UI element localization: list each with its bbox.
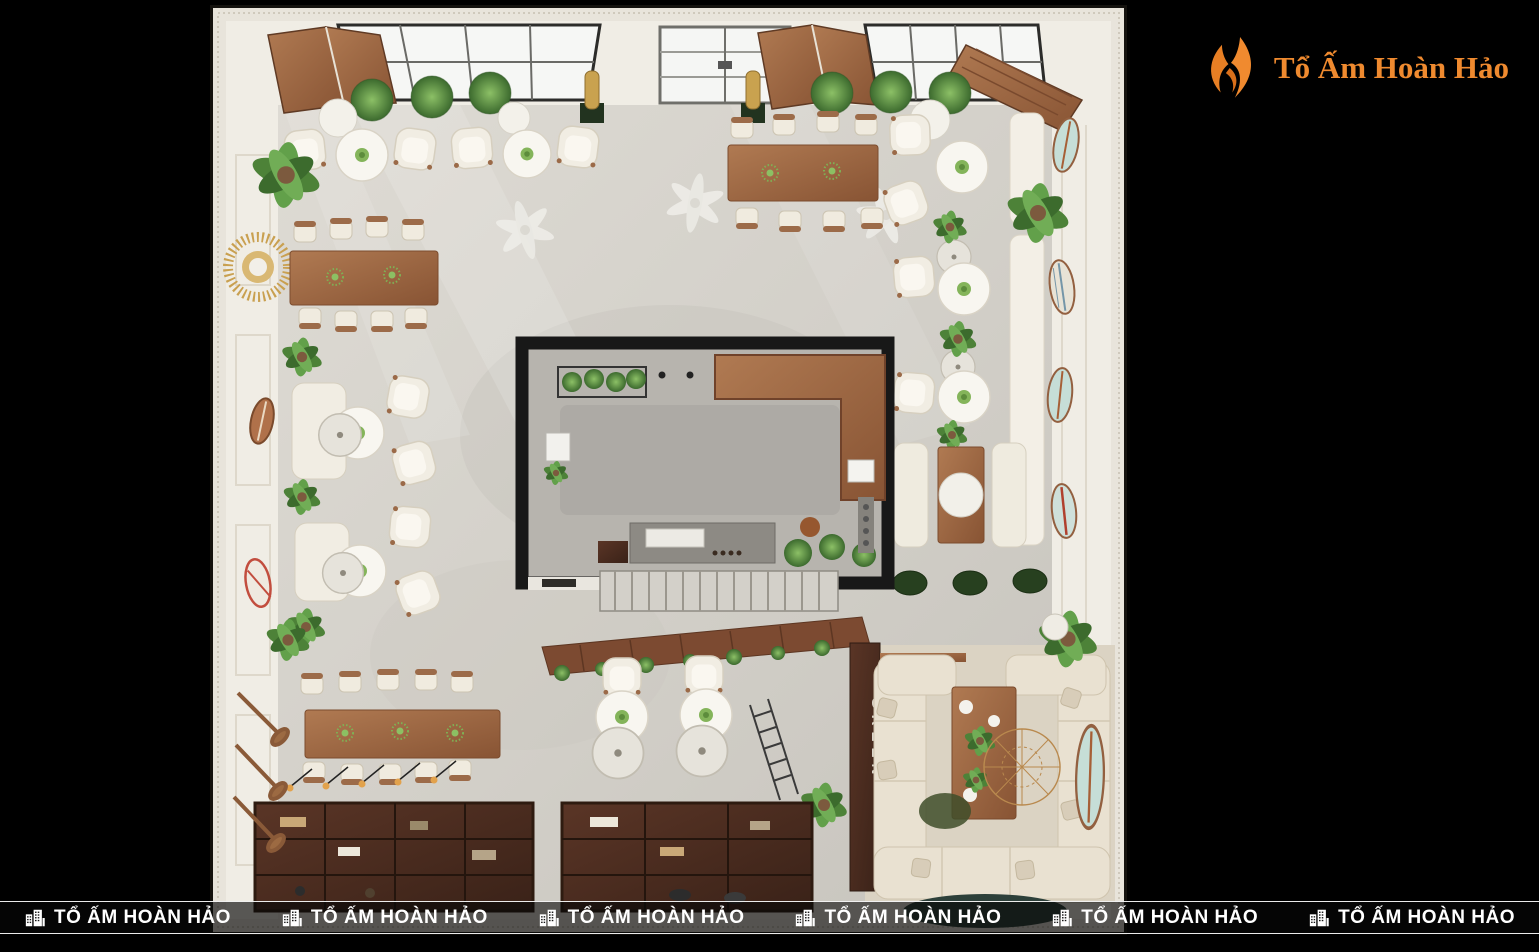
buildings-icon	[538, 907, 560, 929]
watermark-text: TỔ ẤM HOÀN HẢO	[568, 907, 745, 929]
round-table	[938, 263, 990, 315]
watermark-text: TỔ ẤM HOÀN HẢO	[1338, 907, 1515, 929]
pendant-lamp	[498, 102, 530, 134]
watermark-item: TỔ ẤM HOÀN HẢO	[1051, 907, 1258, 929]
brand-name: Tổ Ấm Hoàn Hảo	[1274, 50, 1509, 86]
fridge	[546, 433, 570, 461]
armchair	[892, 371, 935, 414]
pendant-lamp	[593, 728, 644, 779]
watermark-text: TỔ ẤM HOÀN HẢO	[824, 907, 1001, 929]
booth-sofa	[992, 443, 1026, 547]
floor-plant-silhouette	[919, 793, 971, 829]
armchair	[450, 126, 493, 169]
watermark-item: TỔ ẤM HOÀN HẢO	[538, 907, 745, 929]
round-table	[336, 129, 388, 181]
topiary-plant	[411, 76, 453, 118]
armchair	[385, 374, 431, 420]
brand-logo: Tổ Ấm Hoàn Hảo	[1200, 30, 1509, 106]
armchair	[388, 505, 431, 548]
armchair	[889, 114, 930, 155]
round-table	[938, 371, 990, 423]
flame-logo-icon	[1200, 30, 1262, 106]
watermark-item: TỔ ẤM HOÀN HẢO	[24, 907, 231, 929]
page: GREEN	[0, 0, 1539, 952]
armchair	[392, 126, 437, 171]
buildings-icon	[281, 907, 303, 929]
buildings-icon	[794, 907, 816, 929]
bar-station	[522, 343, 888, 590]
pendant-lamp	[323, 553, 364, 594]
topiary-plant	[870, 71, 912, 113]
shelf-unit	[562, 803, 812, 911]
communal-wood-table	[305, 710, 500, 758]
rattan-pendant	[984, 729, 1060, 805]
planter-hedges	[893, 569, 1047, 595]
watermark-item: TỔ ẤM HOÀN HẢO	[794, 907, 1001, 929]
booth-sofa	[894, 443, 928, 547]
buildings-icon	[1308, 907, 1330, 929]
long-dining-table	[728, 145, 878, 201]
watermark-text: TỔ ẤM HOÀN HẢO	[1081, 907, 1258, 929]
watermark-text: TỔ ẤM HOÀN HẢO	[54, 907, 231, 929]
bar-sink	[848, 460, 874, 482]
crates	[598, 541, 628, 563]
shelf-unit	[255, 803, 533, 911]
pendant-lamp	[677, 726, 728, 777]
buildings-icon	[1051, 907, 1073, 929]
topiary-plant	[351, 79, 393, 121]
topiary-plant	[811, 72, 853, 114]
long-dining-table	[290, 251, 438, 305]
watermark-bar: TỔ ẤM HOÀN HẢO TỔ ẤM HOÀN HẢO TỔ ẤM HOÀN…	[0, 901, 1539, 934]
buildings-icon	[24, 907, 46, 929]
round-table	[503, 130, 551, 178]
interior-render-image: GREEN	[210, 5, 1127, 935]
staircase	[600, 571, 838, 611]
pendant-lamp	[939, 473, 983, 517]
watermark-text: TỔ ẤM HOÀN HẢO	[311, 907, 488, 929]
watermark-item: TỔ ẤM HOÀN HẢO	[281, 907, 488, 929]
round-table	[936, 141, 988, 193]
armchair	[556, 125, 601, 170]
lounge-sofa	[874, 847, 1110, 899]
watermark-item: TỔ ẤM HOÀN HẢO	[1308, 907, 1515, 929]
armchair	[685, 656, 723, 694]
armchair	[892, 255, 935, 298]
pendant-lamp	[319, 414, 362, 457]
